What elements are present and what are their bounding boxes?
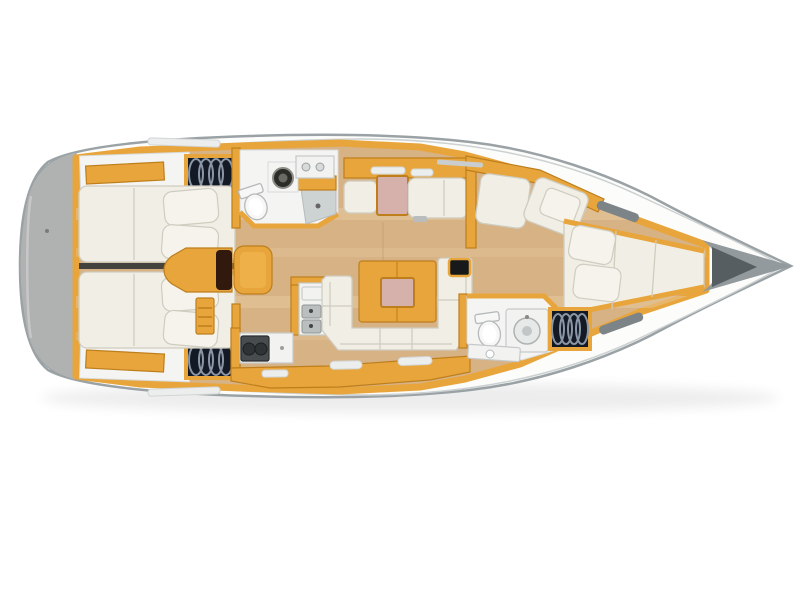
v-berth-pillow-2	[572, 263, 622, 302]
forward-seat-wall	[466, 162, 476, 248]
locker-slot-1	[262, 370, 288, 377]
sink-drain-2	[309, 324, 313, 328]
sink-drain-1	[309, 309, 313, 313]
stern-transom	[20, 152, 76, 380]
cabinet-slot-2	[411, 169, 433, 176]
stove-burner-1	[243, 343, 255, 355]
yacht-floorplan-svg: Sailing yacht interior layout — top-down…	[0, 0, 800, 600]
side-bench-left	[344, 181, 377, 213]
forward-head-wall	[459, 294, 467, 348]
locker-slot-2	[330, 361, 362, 370]
forward-head-basin-drain	[522, 326, 532, 336]
salon-table-inlay	[381, 278, 414, 307]
chart-table-seat-inner	[240, 252, 266, 288]
side-bench-step	[413, 216, 427, 222]
settee-console-box	[449, 259, 470, 276]
shower-drain	[316, 204, 321, 209]
cabinet-knob	[486, 350, 494, 358]
chart-table-seat-cushion	[216, 250, 232, 290]
forward-head-faucet	[525, 315, 529, 319]
aft-port-shelf	[86, 162, 165, 184]
aft-stbd-shelf	[86, 350, 165, 372]
aft-port-pillow-1	[163, 188, 220, 227]
salon-side-bench	[344, 158, 468, 222]
forward-seat-cushion-1	[475, 173, 531, 229]
locker-slot-3	[398, 356, 432, 365]
cabinet-slot-1	[371, 167, 405, 174]
companionway-steps	[196, 298, 214, 334]
transom-fitting	[45, 229, 49, 233]
galley-end-wall	[231, 328, 240, 368]
faucet-knob-2	[316, 163, 324, 171]
stove-burner-2	[255, 343, 267, 355]
side-bench-right	[408, 178, 468, 218]
aft-head	[238, 150, 338, 226]
aft-port-bulkhead-wall	[232, 148, 240, 228]
faucet-knob-1	[302, 163, 310, 171]
counter-handle	[280, 346, 284, 350]
aft-head-basin-drain	[279, 174, 288, 183]
aft-cabin-port	[79, 152, 236, 262]
side-bench-table	[377, 176, 408, 215]
yacht-floorplan-figure: Sailing yacht interior layout — top-down…	[0, 0, 800, 600]
